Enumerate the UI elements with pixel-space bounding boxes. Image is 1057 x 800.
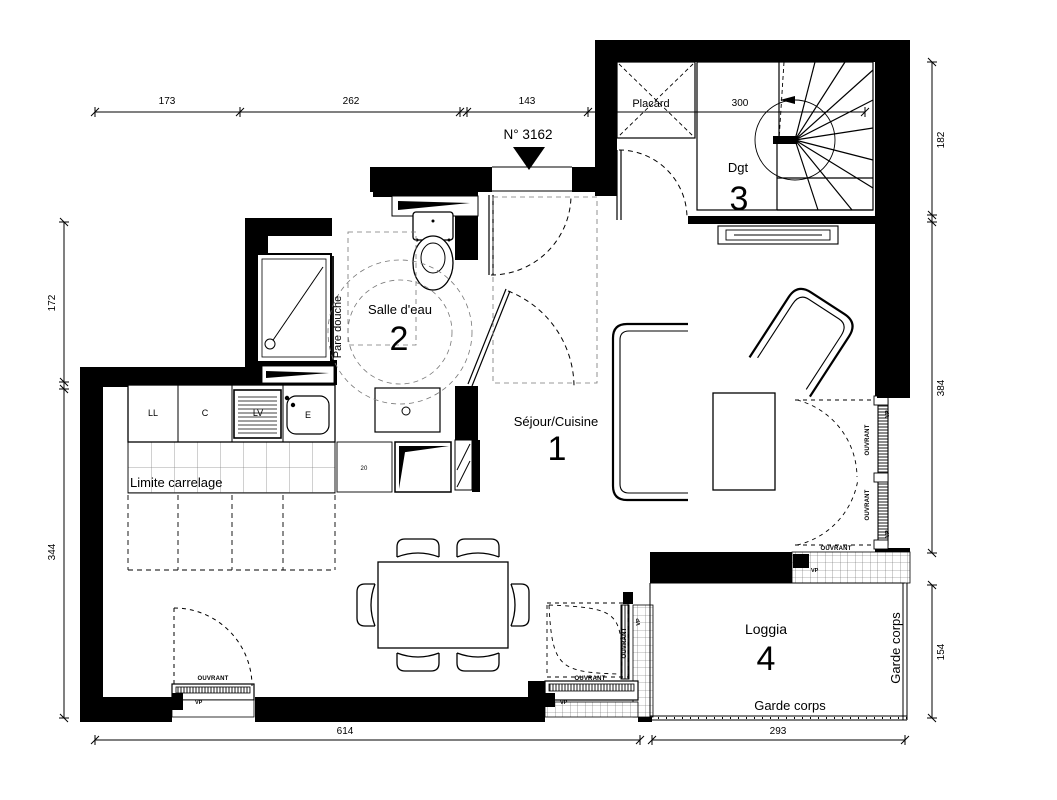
vp-label-bottom-left: VP [195,700,203,706]
dim-right-154: 154 [936,643,947,660]
room-dgt-number: 3 [730,180,749,218]
vp-label-right-lower: VP [885,530,891,538]
unit-number-label: N° 3162 [504,127,553,142]
ouvrant-label-loggia-top: OUVRANT [820,546,851,552]
ouvrant-label-french-door: OUVRANT [574,676,605,682]
floorplan-drawing: 173 262 143 300 172 344 182 384 154 614 … [0,0,1057,800]
kitchen-unit-ll: LL [148,408,158,418]
ouvrant-label-right-lower: OUVRANT [865,489,871,520]
dim-top-143: 143 [519,96,536,107]
kitchen-unit-c: C [202,408,209,418]
kitchen-unit-e: E [305,410,311,420]
room-loggia-name: Loggia [745,621,787,637]
room-salle-eau-name: Salle d'eau [368,302,432,317]
vp-label-french-door: VP [560,700,568,706]
dim-bottom-614: 614 [337,726,354,737]
entry-clearance-zone [493,197,597,383]
tiled-floors [128,442,910,717]
dim-left-344: 344 [47,543,58,560]
dim-top-300: 300 [732,98,749,109]
room-salle-eau-number: 2 [390,320,409,358]
floorplan-page: 173 262 143 300 172 344 182 384 154 614 … [0,0,1057,800]
dim-bottom-293: 293 [770,726,787,737]
vp-label-loggia: VP [811,568,819,574]
vp-label-right-upper: VP [885,410,891,418]
limite-carrelage-label: Limite carrelage [130,475,223,490]
ouvrant-label-right-upper: OUVRANT [865,424,871,455]
dim-top-262: 262 [343,96,360,107]
note-20-label: 20 [360,466,368,472]
ouvrant-label-french-door-leaf: OUVRANT [622,627,628,658]
pare-douche-label: Pare douche [332,296,344,358]
room-dgt-name: Dgt [728,160,749,175]
dim-right-182: 182 [936,131,947,148]
placard-label: Placard [632,98,669,110]
garde-corps-right-label: Garde corps [888,612,903,684]
dim-right-384: 384 [936,379,947,396]
room-sejour-number: 1 [548,430,567,468]
room-sejour-name: Séjour/Cuisine [514,414,599,429]
kitchen-unit-lv: LV [253,408,263,418]
ouvrant-label-bottom-left: OUVRANT [197,676,228,682]
vp-label-french-leaf: VP [636,618,642,626]
dim-left-172: 172 [47,294,58,311]
garde-corps-bottom-label: Garde corps [754,698,826,713]
room-loggia-number: 4 [757,640,776,678]
dim-top-173: 173 [159,96,176,107]
